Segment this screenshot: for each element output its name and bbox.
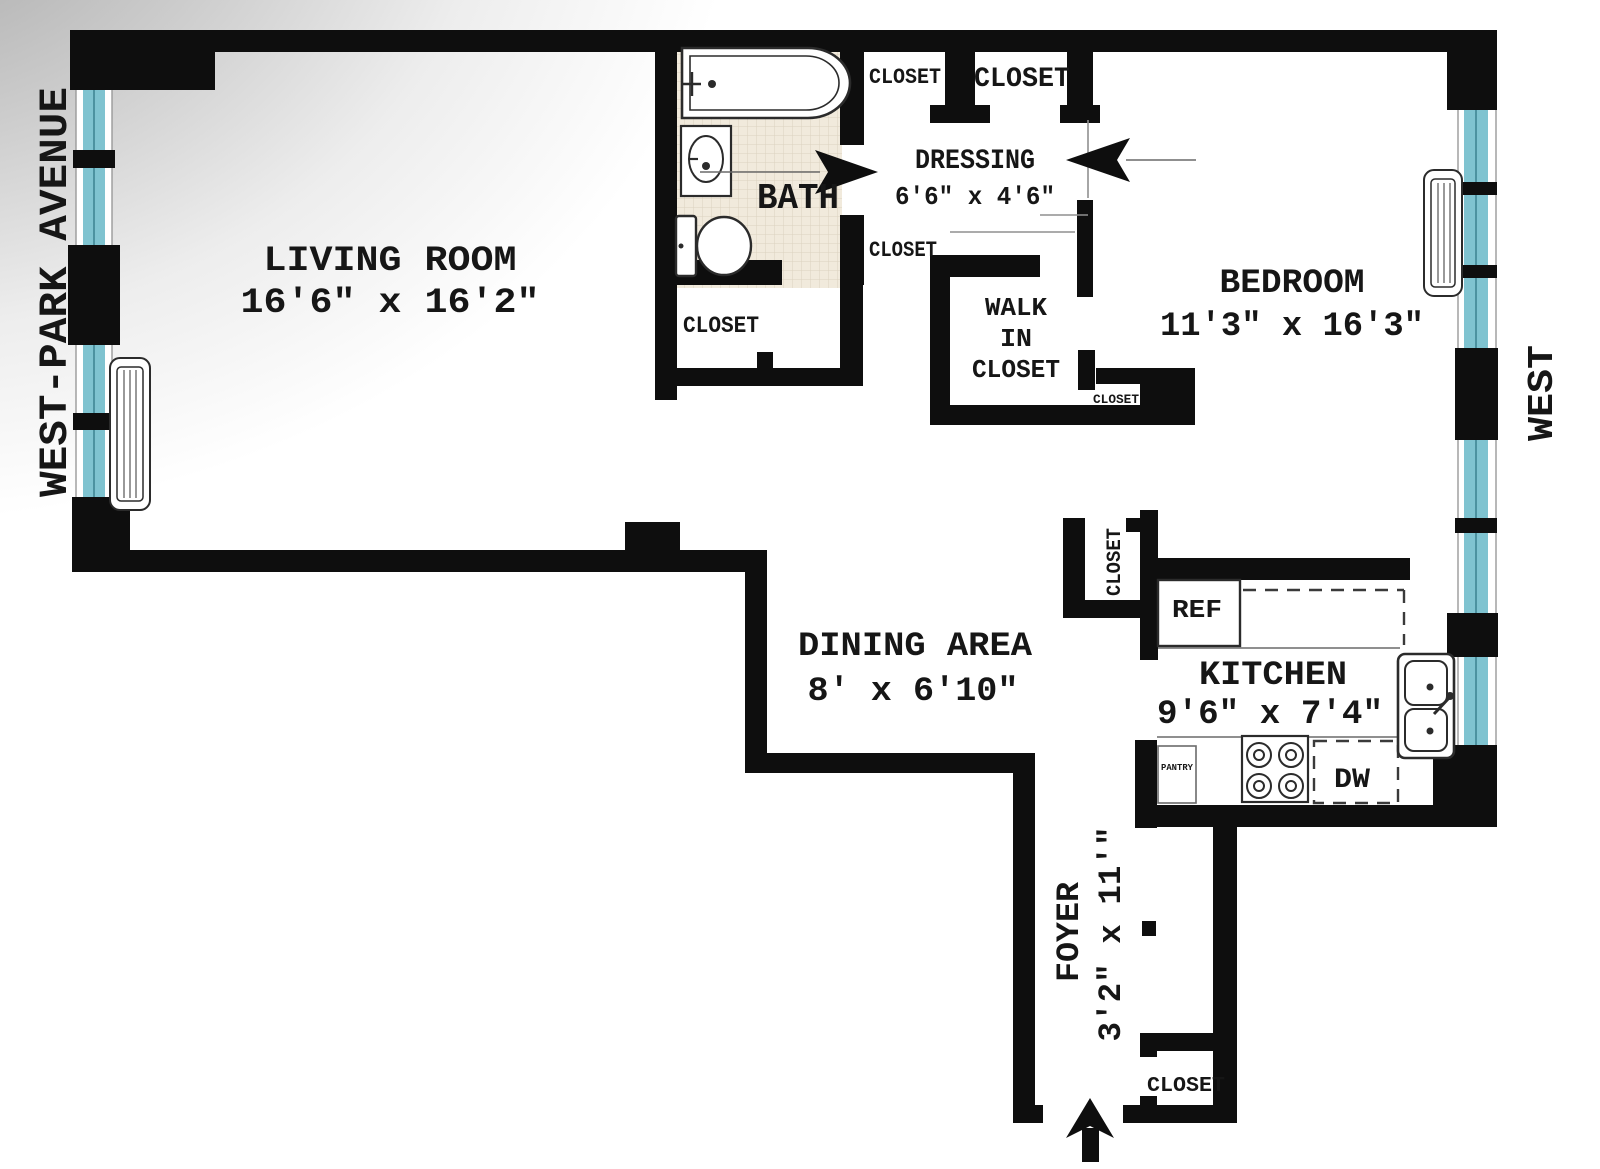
ref-label: REF: [1172, 595, 1222, 625]
window-mullion: [1455, 518, 1497, 533]
bedroom-label: BEDROOM: [1220, 265, 1365, 303]
wall-pier: [1455, 348, 1498, 440]
window-mullion: [73, 413, 115, 430]
radiator-bedroom: [1424, 170, 1462, 296]
closet-foyer-bottom-label: CLOSET: [1147, 1075, 1225, 1098]
kitchen-label: KITCHEN: [1199, 657, 1347, 695]
closet-top-small-label: CLOSET: [869, 65, 941, 90]
bath-sink: [681, 126, 731, 196]
dressing-label: DRESSING: [915, 146, 1035, 177]
closet-living-label: CLOSET: [683, 313, 759, 339]
closet-top-large-label: CLOSET: [974, 64, 1070, 95]
dining-label: DINING AREA: [798, 628, 1033, 666]
street-label-right: WEST: [1522, 345, 1563, 441]
bathtub: [682, 48, 850, 118]
dining-dims: 8' x 6'10": [808, 673, 1019, 711]
pantry-label: PANTRY: [1161, 762, 1193, 773]
living-room-dims: 16'6" x 16'2": [241, 283, 540, 323]
living-room-label: LIVING ROOM: [264, 241, 517, 281]
pantry-cabinet: [1158, 746, 1196, 803]
walk-in-closet-line1: WALK: [985, 293, 1047, 323]
dressing-entry-arrow-right: [1066, 138, 1196, 182]
walk-in-closet-line3: CLOSET: [972, 355, 1060, 385]
kitchen-dims: 9'6" x 7'4": [1157, 696, 1383, 734]
floor-plan-page: LIVING ROOM 16'6" x 16'2" BATH CLOSET CL…: [0, 0, 1600, 1169]
walk-in-closet-line2: IN: [1000, 324, 1032, 354]
closet-mid-label: CLOSET: [869, 238, 937, 263]
toilet: [676, 216, 751, 276]
kitchen-sink: [1398, 654, 1454, 758]
window-mullion: [73, 150, 115, 168]
stove: [1242, 736, 1308, 802]
floor-plan: LIVING ROOM 16'6" x 16'2" BATH CLOSET CL…: [0, 0, 1600, 1169]
bath-label: BATH: [757, 178, 839, 219]
street-label-left: WEST-PARK AVENUE: [34, 87, 79, 497]
foyer-dims: 3'2" x 11'": [1093, 827, 1130, 1042]
wall-pier: [1447, 613, 1498, 657]
bedroom-dims: 11'3" x 16'3": [1160, 308, 1424, 346]
dw-label: DW: [1334, 765, 1370, 796]
foyer-label: FOYER: [1051, 881, 1088, 982]
main-entry-arrow: [1066, 1098, 1114, 1162]
closet-bedroom-small-label: CLOSET: [1093, 392, 1139, 407]
radiator-living-room: [110, 358, 150, 510]
closet-foyer-top-label: CLOSET: [1104, 528, 1127, 596]
dressing-dims: 6'6" x 4'6": [895, 182, 1055, 212]
